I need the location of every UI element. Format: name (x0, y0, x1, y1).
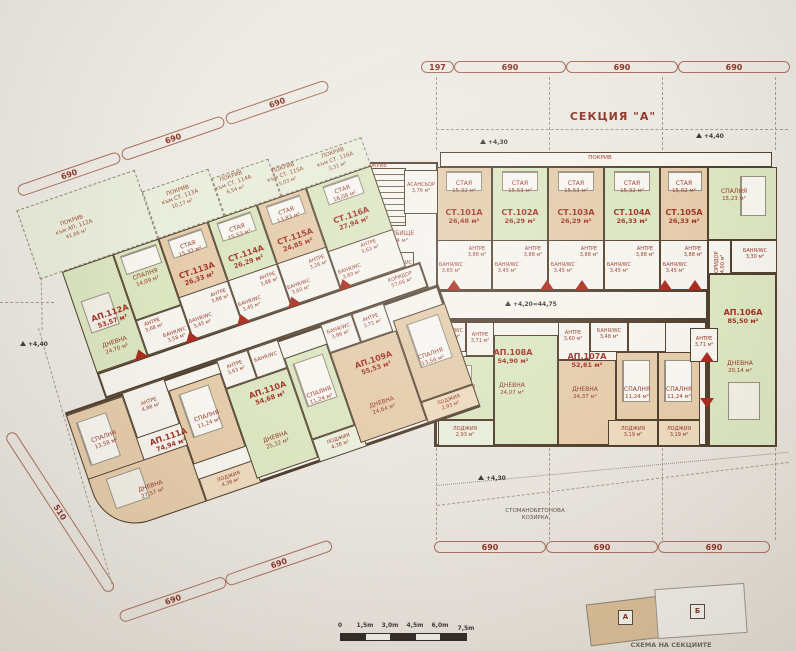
schema-badge-a: А (618, 610, 633, 625)
dimension-value: 690 (118, 576, 228, 624)
canopy-label: СТОМАНОБЕТОНОВАКОЗИРКА (470, 508, 600, 522)
room-label: СТАЯ15,53 м² (496, 180, 544, 194)
schema-badge-b: Б (690, 604, 705, 619)
dimension-value: 690 (566, 61, 678, 73)
room-label: СПАЛНЯ11,24 м² (657, 386, 701, 400)
room-label: СПАЛНЯ11,24 м² (615, 386, 659, 400)
dimension-value: 690 (224, 79, 330, 126)
section-boundary-line (436, 129, 788, 130)
scale-segment (440, 633, 467, 641)
elevation-flag-icon (478, 472, 484, 480)
room-label: СТАЯ15,32 м² (608, 180, 656, 194)
grid-line (0, 302, 54, 303)
scale-segment (365, 633, 392, 641)
scale-segment (340, 633, 367, 641)
unit-label-ap106a: АП.106А85,50 м² (716, 308, 770, 325)
schema-caption: СХЕМА НА СЕКЦИИТЕ (596, 641, 746, 649)
unit-label-st104a: СТ.104А26,33 м² (608, 208, 656, 225)
elevation-flag-icon (20, 338, 26, 346)
scale-tick: 3,0m (380, 622, 400, 629)
direction-triangle-icon (540, 280, 554, 290)
scale-tick: 4,5m (405, 622, 425, 629)
dimension-value: 690 (120, 115, 226, 162)
direction-triangle-icon (658, 280, 672, 290)
elevation-mark: +4,30 (478, 472, 506, 482)
room-label: АНТРЕ3,60 м² (556, 330, 590, 342)
unit-label-ap107a: АП.107А52,61 м² (562, 352, 612, 369)
direction-triangle-icon (700, 352, 714, 362)
floor-plan-canvas: 197 690 690 690 690 690 690 690 690 690 … (0, 0, 796, 651)
room-label: АНТРЕ3,88 м² (518, 246, 548, 258)
dimension-value: 690 (658, 541, 770, 553)
dimension-value: 690 (454, 61, 566, 73)
room-label: СПАЛНЯ15,23 м² (710, 188, 758, 202)
room-label: АНТРЕ3,88 м² (678, 246, 708, 258)
elevation-flag-icon (480, 136, 486, 144)
direction-triangle-icon (575, 280, 589, 290)
furniture-table (728, 382, 760, 420)
scale-tick: 6,0m (430, 622, 450, 629)
projection-line (549, 448, 550, 540)
room-bath-2 (628, 322, 666, 352)
scale-tick: 1,5m (355, 622, 375, 629)
dimension-value: 690 (678, 61, 790, 73)
scale-bar: 0 1,5m 3,0m 4,5m 6,0m 7,5m (330, 622, 490, 648)
projection-line (775, 77, 776, 150)
elevation-mark: +4,30 (480, 136, 508, 146)
dimension-value: 690 (546, 541, 658, 553)
room-label: ДНЕВНА20,14 м² (718, 360, 762, 374)
room-label: АНТРЕ3,88 м² (574, 246, 604, 258)
room-label: БАНЯ/WC3,30 м² (735, 248, 775, 260)
room-label: ДНЕВНА24,37 м² (563, 386, 607, 400)
dimension-value: 690 (224, 539, 334, 587)
scale-segment (415, 633, 442, 641)
roof-strip-label: ПОКРИВ (560, 155, 640, 162)
unit-label-st105a: СТ.105А26,33 м² (660, 208, 708, 225)
room-label: ЛОДЖИЯ3,19 м² (654, 426, 704, 438)
dimension-line-bottom: 690 690 690 (434, 541, 774, 555)
elevation-flag-icon (696, 130, 702, 138)
projection-line (662, 448, 663, 540)
room-label: БАНЯ/WC3,45 м² (550, 262, 576, 274)
scale-tick: 7,5m (455, 625, 477, 632)
elevation-mark: +4,40 (20, 338, 48, 348)
section-title: СЕКЦИЯ "А" (548, 110, 678, 123)
room-label: БАНЯ/WC3,48 м² (592, 328, 626, 340)
elevation-mark: +4,40 (696, 130, 724, 140)
unit-label-st102a: СТ.102А26,29 м² (496, 208, 544, 225)
dimension-line-top: 197 690 690 690 (421, 61, 792, 75)
room-label: СТАЯ15,53 м² (552, 180, 600, 194)
room-label: СТАЯ15,02 м² (660, 180, 708, 194)
room-label: АНТРЕ3,88 м² (630, 246, 660, 258)
dimension-value: 690 (434, 541, 546, 553)
scale-segment (390, 633, 417, 641)
scale-tick: 0 (330, 622, 350, 629)
room-label: ЛОДЖИЯ3,19 м² (608, 426, 658, 438)
direction-triangle-icon (700, 398, 714, 408)
room-label: БАНЯ/WC3,45 м² (662, 262, 688, 274)
room-label: АНТРЕ3,71 м² (688, 336, 720, 348)
room-label: БАНЯ/WC3,45 м² (606, 262, 632, 274)
projection-line (775, 448, 776, 540)
direction-triangle-icon (688, 280, 702, 290)
unit-label-st103a: СТ.103А26,29 м² (552, 208, 600, 225)
dimension-value: 197 (421, 61, 454, 73)
